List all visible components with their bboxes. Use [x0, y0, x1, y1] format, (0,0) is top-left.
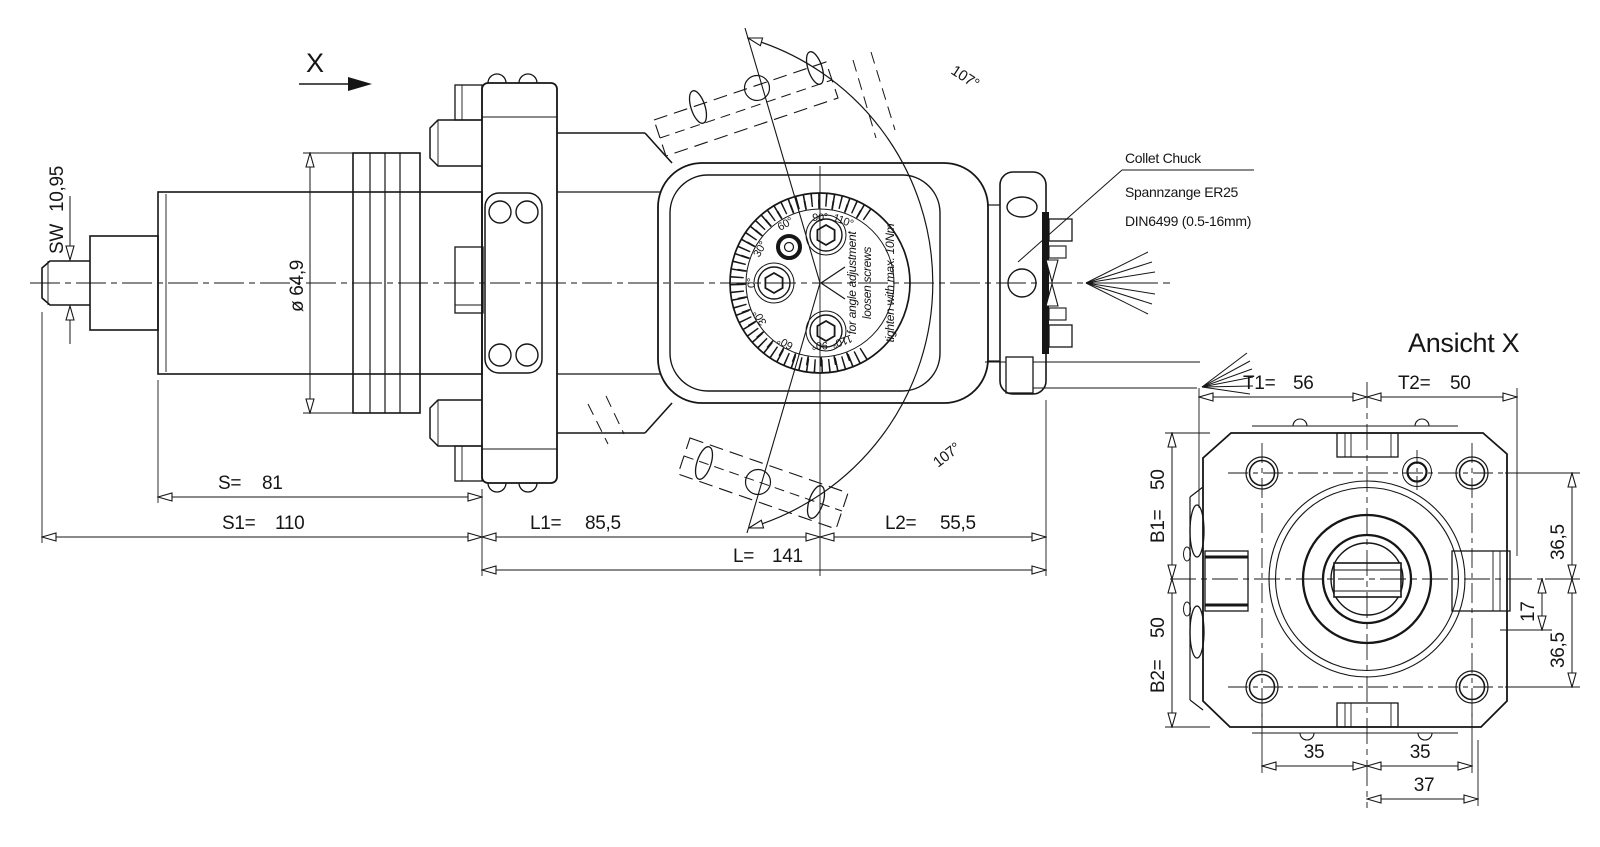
gib-hole [516, 201, 538, 223]
lower-lock-block [1006, 357, 1033, 393]
dial-note-line2: loosen screws [860, 247, 874, 319]
dim-sw: SW 10,95 [47, 166, 70, 344]
ansicht-x-title: Ansicht X [1408, 328, 1520, 358]
dim-l-value: 141 [772, 546, 803, 567]
dim-b2-label: B2= [1148, 659, 1169, 693]
top-plate-bump [1415, 419, 1429, 426]
swivel-angle-top-label: 107° [948, 62, 983, 93]
collet-tooth [1049, 308, 1066, 320]
main-view: 0° 30° 60° 90° 110° 30° 60° 90° 110° [30, 28, 1254, 576]
dial-label-0: 0° [746, 278, 758, 288]
dim-t1-value: 56 [1293, 373, 1314, 394]
dome-screw [519, 483, 537, 492]
dim-b1-value: 50 [1148, 469, 1169, 490]
dim-s: S= 81 [158, 473, 482, 497]
dim-b1-label: B1= [1148, 509, 1169, 543]
dim-sw-value: 10,95 [47, 166, 68, 212]
dim-t2-value: 50 [1450, 373, 1471, 394]
dim-l: L= 141 [482, 546, 1046, 570]
collet-note-line3: DIN6499 (0.5-16mm) [1125, 213, 1251, 229]
gib-hole [489, 201, 511, 223]
dim-s1-value: 110 [275, 513, 304, 534]
collet-note: Collet Chuck Spannzange ER25 DIN6499 (0.… [1018, 150, 1254, 262]
technical-drawing: 0° 30° 60° 90° 110° 30° 60° 90° 110° [0, 0, 1600, 847]
dial-index-knob [778, 236, 800, 258]
dim-b2-value: 50 [1148, 617, 1169, 638]
dim-t1-t2: T1= 56 T2= 50 [1199, 373, 1517, 556]
dim-right-bottom-value: 36,5 [1548, 632, 1569, 668]
collet-gap [1042, 212, 1049, 354]
dim-l2-label: L2= [885, 513, 917, 534]
bottom-plate-bump [1418, 733, 1432, 740]
dome-screw [519, 74, 537, 83]
dim-b1-b2: B1= 50 B2= 50 [1148, 433, 1210, 727]
dim-bottom-right-value: 35 [1410, 742, 1431, 763]
dim-sw-label: SW [47, 224, 68, 254]
dial-label-30-lower: 30° [751, 308, 769, 328]
dim-bottom-center-value: 37 [1414, 775, 1435, 796]
dial-note-line3: tighten with max. 10Nm [883, 223, 897, 342]
view-arrow-label: X [306, 48, 324, 78]
collet-tooth [1049, 219, 1072, 241]
neck-chamfer [645, 403, 672, 433]
dim-right-side: 36,5 17 36,5 [1500, 473, 1580, 687]
bottom-key-tab [1337, 703, 1398, 727]
right-side-tab [1452, 551, 1510, 611]
dim-s1-label: S1= [222, 513, 256, 534]
dim-l1-value: 85,5 [585, 513, 621, 534]
ansicht-x-view: Ansicht X [1148, 328, 1580, 808]
dim-s1: S1= 110 [42, 513, 482, 537]
dim-l2-value: 55,5 [940, 513, 976, 534]
dial-label-30-upper: 30° [751, 240, 769, 260]
dim-s-value: 81 [262, 473, 283, 494]
dome-screw [488, 483, 506, 492]
dim-right-mid-value: 17 [1518, 601, 1539, 622]
collet-tooth [1049, 246, 1066, 258]
left-clamp-profile [1184, 487, 1249, 710]
swiveled-position-bottom [588, 396, 848, 529]
view-direction-arrow: X [299, 48, 372, 91]
view-arrowhead [348, 77, 372, 91]
collet-tooth [1049, 325, 1072, 347]
center-key-block [455, 247, 483, 313]
bottom-plate-bump [1300, 733, 1314, 740]
dial-index-knob-center [785, 243, 794, 252]
dim-bottom: 35 35 37 [1262, 708, 1478, 806]
dome-screw [488, 74, 506, 83]
dim-s-label: S= [218, 473, 241, 494]
dial-label-60-upper: 60° [776, 215, 796, 233]
dim-l2: L2= 55,5 [820, 513, 1046, 537]
dim-t2-label: T2= [1398, 373, 1431, 394]
collet-note-line1: Collet Chuck [1125, 150, 1202, 166]
gib-hole [489, 344, 511, 366]
nose-oval-hole [1007, 197, 1037, 217]
dim-extension-lines [42, 312, 1046, 576]
neck-chamfer [645, 133, 672, 163]
collet-note-line2: Spannzange ER25 [1125, 184, 1239, 200]
dim-diameter-value: ø 64,9 [287, 260, 308, 312]
lower-spacer [455, 446, 482, 481]
upper-spacer [455, 85, 482, 120]
dim-t1-label: T1= [1243, 373, 1276, 394]
drawing-page: 0° 30° 60° 90° 110° 30° 60° 90° 110° [0, 0, 1600, 847]
dial-label-60-lower: 60° [776, 333, 796, 351]
gib-hole [516, 344, 538, 366]
dim-bottom-left-value: 35 [1304, 742, 1325, 763]
dim-l1: L1= 85,5 [482, 513, 820, 537]
top-plate-bump [1293, 419, 1307, 426]
dim-l1-label: L1= [530, 513, 562, 534]
dim-l-label: L= [733, 546, 754, 567]
swivel-angle-bottom-label: 107° [930, 439, 964, 471]
top-key-tab [1337, 433, 1398, 457]
dim-right-top-value: 36,5 [1548, 524, 1569, 560]
dial-note-line1: for angle adjustment [845, 231, 859, 335]
